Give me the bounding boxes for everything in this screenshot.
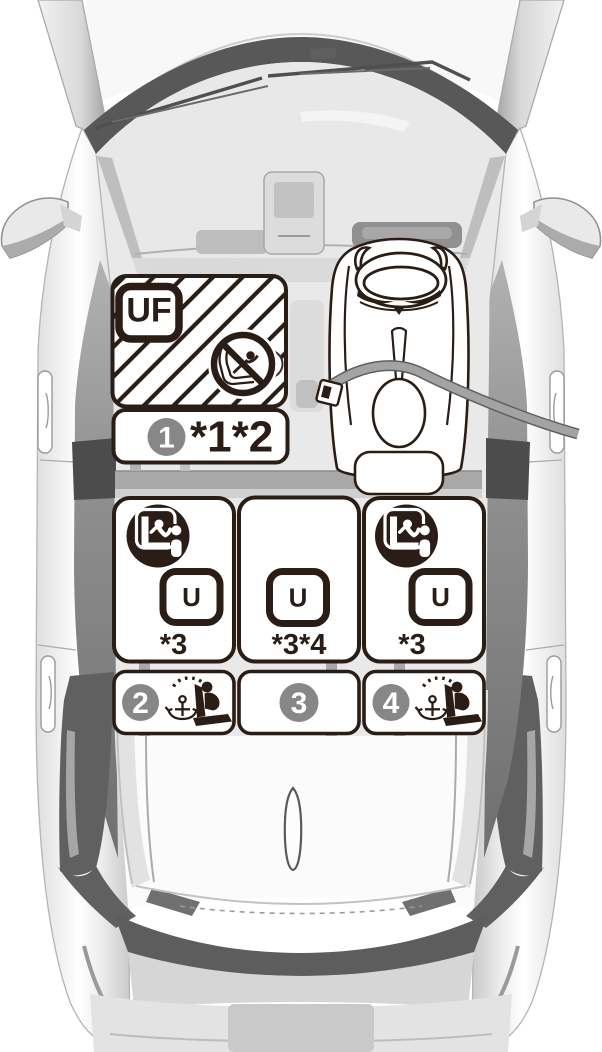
svg-text:U: U — [289, 583, 308, 613]
svg-text:3: 3 — [291, 687, 308, 720]
svg-text:4: 4 — [383, 687, 400, 720]
svg-text:*3*4: *3*4 — [272, 629, 327, 661]
svg-text:U: U — [431, 582, 450, 612]
svg-text:U: U — [182, 582, 201, 612]
svg-text:UF: UF — [126, 292, 171, 330]
svg-text:*3: *3 — [398, 629, 425, 661]
svg-text:2: 2 — [132, 687, 149, 720]
svg-text:*1*2: *1*2 — [190, 413, 273, 462]
svg-text:*3: *3 — [160, 629, 187, 661]
svg-text:1: 1 — [158, 422, 175, 455]
